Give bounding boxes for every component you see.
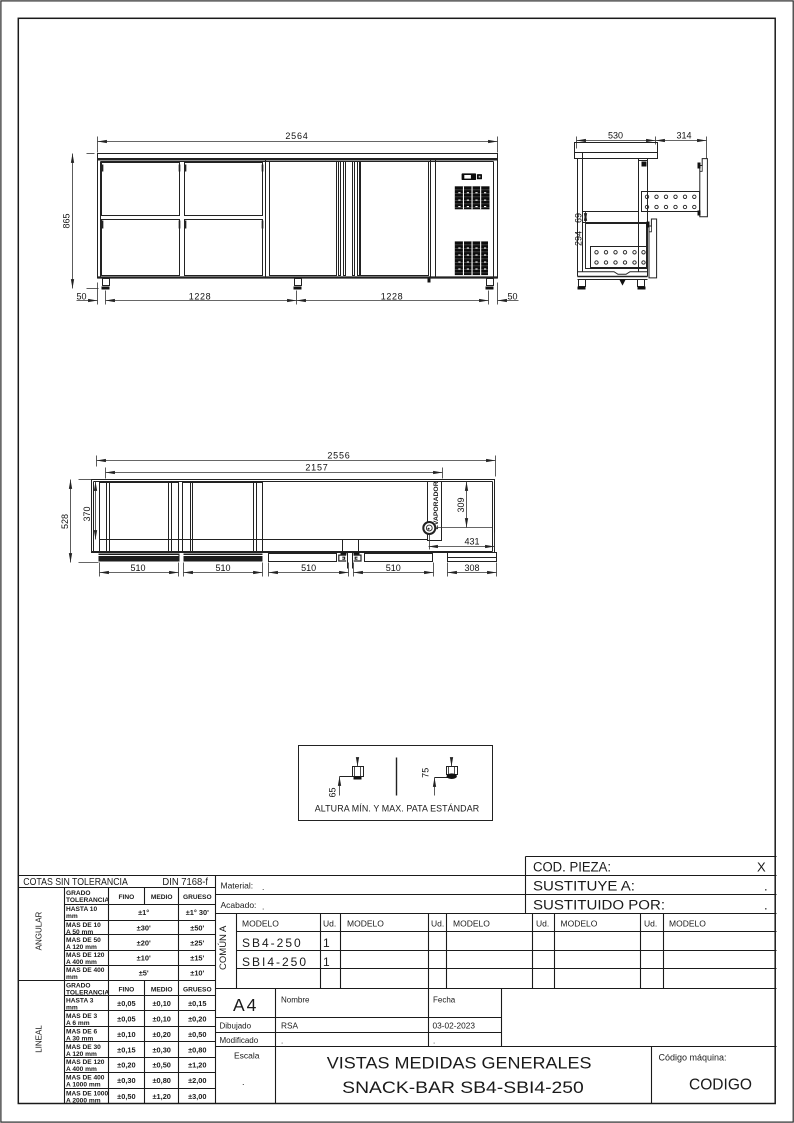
- svg-text:A 400 mm: A 400 mm: [66, 1066, 97, 1073]
- svg-text:2157: 2157: [305, 463, 328, 473]
- svg-text:±0,10: ±0,10: [152, 1015, 170, 1024]
- svg-text:.: .: [242, 1077, 245, 1087]
- svg-text:±1° 30': ±1° 30': [186, 908, 209, 917]
- svg-text:DIN 7168-f: DIN 7168-f: [162, 877, 208, 888]
- svg-text:±0,30: ±0,30: [152, 1045, 170, 1054]
- svg-text:309: 309: [456, 497, 466, 512]
- svg-text:03-02-2023: 03-02-2023: [433, 1020, 476, 1030]
- svg-text:LINEAL: LINEAL: [35, 1025, 44, 1053]
- svg-text:865: 865: [62, 213, 72, 228]
- svg-text:50: 50: [76, 291, 86, 301]
- svg-text:A 30 mm: A 30 mm: [66, 1035, 93, 1042]
- svg-text:±0,30: ±0,30: [117, 1076, 135, 1085]
- svg-text:.: .: [764, 879, 768, 894]
- svg-text:MAS DE 10: MAS DE 10: [66, 922, 101, 929]
- svg-text:±0,20: ±0,20: [117, 1061, 135, 1070]
- svg-text:Ud.: Ud.: [323, 918, 336, 928]
- svg-text:Nombre: Nombre: [281, 996, 310, 1005]
- svg-text:Dibujado: Dibujado: [220, 1021, 252, 1030]
- svg-text:2556: 2556: [327, 450, 350, 460]
- svg-text:MODELO: MODELO: [453, 918, 490, 928]
- svg-text:Ud.: Ud.: [536, 918, 549, 928]
- svg-text:370: 370: [82, 506, 92, 521]
- svg-text:Modificado: Modificado: [220, 1036, 259, 1045]
- svg-text:GRADO: GRADO: [66, 890, 91, 897]
- svg-text:SB4-250: SB4-250: [242, 936, 303, 950]
- svg-text:±0,50: ±0,50: [188, 1030, 206, 1039]
- svg-text:SNACK-BAR SB4-SBI4-250: SNACK-BAR SB4-SBI4-250: [342, 1078, 584, 1097]
- svg-text:HASTA 3: HASTA 3: [66, 998, 94, 1005]
- svg-text:SBI4-250: SBI4-250: [242, 955, 308, 969]
- svg-text:510: 510: [301, 563, 316, 573]
- svg-text:MAS DE 3: MAS DE 3: [66, 1013, 97, 1020]
- svg-text:MEDIO: MEDIO: [151, 987, 173, 994]
- svg-text:±30': ±30': [137, 923, 151, 932]
- svg-text:±1°: ±1°: [138, 908, 149, 917]
- svg-text:A 120 mm: A 120 mm: [66, 1051, 97, 1058]
- svg-text:510: 510: [386, 563, 401, 573]
- svg-text:530: 530: [608, 131, 623, 141]
- svg-text:65: 65: [328, 787, 338, 797]
- svg-text:510: 510: [215, 563, 230, 573]
- svg-text:Material:: Material:: [221, 881, 254, 891]
- svg-text:±50': ±50': [190, 923, 204, 932]
- svg-text:75: 75: [421, 768, 431, 778]
- svg-text:±10': ±10': [137, 954, 151, 963]
- svg-text:±25': ±25': [190, 938, 204, 947]
- svg-text:MAS DE 400: MAS DE 400: [66, 1075, 105, 1082]
- svg-text:GRUESO: GRUESO: [183, 894, 212, 901]
- svg-text:MEDIO: MEDIO: [151, 894, 173, 901]
- svg-text:Acabado:: Acabado:: [221, 900, 257, 910]
- svg-text:MAS DE 30: MAS DE 30: [66, 1044, 101, 1051]
- svg-text:MAS DE 400: MAS DE 400: [66, 967, 105, 974]
- svg-text:mm: mm: [66, 974, 78, 981]
- svg-text:Fecha: Fecha: [433, 996, 456, 1005]
- svg-text:MAS DE 120: MAS DE 120: [66, 1059, 105, 1066]
- svg-text:A 2000 mm: A 2000 mm: [66, 1098, 101, 1105]
- svg-text:A 1000 mm: A 1000 mm: [66, 1082, 101, 1089]
- svg-text:±0,50: ±0,50: [117, 1092, 135, 1101]
- svg-text:±0,15: ±0,15: [188, 999, 206, 1008]
- svg-text:mm: mm: [66, 913, 78, 920]
- svg-text:.: .: [764, 897, 768, 912]
- svg-text:308: 308: [464, 563, 479, 573]
- svg-text:A 50 mm: A 50 mm: [66, 929, 93, 936]
- svg-text:A4: A4: [233, 995, 258, 1015]
- svg-text:Escala: Escala: [234, 1051, 260, 1061]
- svg-text:ALTURA MÍN. Y MAX. PATA ESTÁND: ALTURA MÍN. Y MAX. PATA ESTÁNDAR: [315, 804, 479, 814]
- svg-text:510: 510: [130, 563, 145, 573]
- svg-text:SUSTITUIDO POR:: SUSTITUIDO POR:: [533, 897, 665, 912]
- svg-text:±0,05: ±0,05: [117, 1015, 135, 1024]
- svg-text:SUSTITUYE A:: SUSTITUYE A:: [533, 879, 635, 894]
- svg-text:±1,20: ±1,20: [188, 1061, 206, 1070]
- svg-text:A 6 mm: A 6 mm: [66, 1020, 90, 1027]
- svg-text:±10': ±10': [190, 969, 204, 978]
- svg-text:±0,20: ±0,20: [152, 1030, 170, 1039]
- svg-text:MODELO: MODELO: [242, 918, 279, 928]
- svg-text:±0,10: ±0,10: [117, 1030, 135, 1039]
- svg-text:COTAS SIN TOLERANCIA: COTAS SIN TOLERANCIA: [23, 877, 128, 888]
- svg-text:RSA: RSA: [281, 1020, 299, 1030]
- svg-text:±0,20: ±0,20: [188, 1015, 206, 1024]
- svg-text:50: 50: [507, 291, 517, 301]
- svg-text:Ud.: Ud.: [431, 918, 444, 928]
- svg-text:69: 69: [574, 213, 584, 223]
- svg-text:GRADO: GRADO: [66, 982, 91, 989]
- svg-text:COMÚN A: COMÚN A: [218, 925, 229, 970]
- svg-text:A 120 mm: A 120 mm: [66, 944, 97, 951]
- svg-text:±20': ±20': [137, 938, 151, 947]
- svg-text:1: 1: [323, 955, 330, 969]
- svg-text:VISTAS MEDIDAS GENERALES: VISTAS MEDIDAS GENERALES: [327, 1054, 592, 1073]
- svg-text:ANGULAR: ANGULAR: [35, 911, 44, 950]
- svg-text:MAS DE 50: MAS DE 50: [66, 937, 101, 944]
- svg-text:X: X: [757, 860, 766, 875]
- svg-text:COD. PIEZA:: COD. PIEZA:: [533, 860, 611, 875]
- svg-text:TOLERANCIA: TOLERANCIA: [66, 897, 109, 904]
- svg-text:1228: 1228: [189, 291, 211, 301]
- svg-text:MODELO: MODELO: [347, 918, 384, 928]
- svg-text:±1,20: ±1,20: [152, 1092, 170, 1101]
- svg-text:±0,15: ±0,15: [117, 1045, 135, 1054]
- svg-text:FINO: FINO: [119, 894, 135, 901]
- svg-text:Ud.: Ud.: [644, 918, 657, 928]
- svg-text:314: 314: [676, 131, 691, 141]
- svg-text:.: .: [262, 901, 264, 911]
- svg-text:±0,10: ±0,10: [152, 999, 170, 1008]
- svg-text:Código máquina:: Código máquina:: [659, 1053, 727, 1063]
- svg-text:MAS DE 1000: MAS DE 1000: [66, 1091, 108, 1098]
- svg-text:HASTA 10: HASTA 10: [66, 906, 97, 913]
- svg-text:±0,80: ±0,80: [188, 1045, 206, 1054]
- svg-text:±0,50: ±0,50: [152, 1061, 170, 1070]
- svg-text:A 400 mm: A 400 mm: [66, 959, 97, 966]
- svg-text:1: 1: [323, 936, 330, 950]
- svg-text:FINO: FINO: [119, 987, 135, 994]
- svg-text:±15': ±15': [190, 954, 204, 963]
- svg-text:2564: 2564: [285, 131, 308, 141]
- svg-text:±0,80: ±0,80: [152, 1076, 170, 1085]
- svg-text:431: 431: [464, 536, 479, 546]
- svg-text:MODELO: MODELO: [669, 918, 706, 928]
- svg-text:1228: 1228: [381, 291, 403, 301]
- svg-text:±2,00: ±2,00: [188, 1076, 206, 1085]
- svg-text:MAS DE 120: MAS DE 120: [66, 952, 105, 959]
- svg-text:.: .: [281, 1037, 283, 1046]
- svg-text:GRUESO: GRUESO: [183, 987, 212, 994]
- svg-text:MAS DE 6: MAS DE 6: [66, 1028, 97, 1035]
- svg-text:CODIGO: CODIGO: [689, 1077, 752, 1094]
- svg-text:±0,05: ±0,05: [117, 999, 135, 1008]
- svg-text:.: .: [433, 1037, 435, 1046]
- svg-text:EVAPORADOR: EVAPORADOR: [433, 481, 440, 529]
- svg-text:TOLERANCIA: TOLERANCIA: [66, 990, 109, 997]
- svg-text:MODELO: MODELO: [561, 918, 598, 928]
- svg-text:528: 528: [60, 514, 70, 529]
- svg-text:±5': ±5': [139, 969, 149, 978]
- svg-text:294: 294: [574, 231, 584, 246]
- svg-text:.: .: [262, 882, 264, 892]
- svg-text:mm: mm: [66, 1005, 78, 1012]
- svg-text:±3,00: ±3,00: [188, 1092, 206, 1101]
